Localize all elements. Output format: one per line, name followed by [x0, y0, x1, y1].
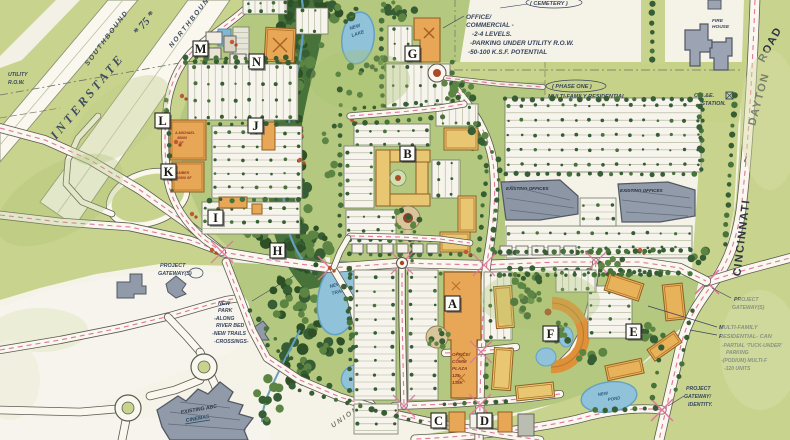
svg-text:I: I — [213, 211, 218, 225]
svg-text:C: C — [434, 414, 443, 428]
svg-text:B: B — [403, 147, 411, 161]
svg-text:L: L — [158, 114, 166, 128]
svg-text:K: K — [164, 165, 174, 179]
svg-text:G: G — [408, 47, 418, 61]
svg-text:J: J — [252, 119, 258, 133]
svg-text:D: D — [480, 414, 489, 428]
svg-text:N: N — [252, 55, 261, 69]
svg-text:E: E — [629, 325, 637, 339]
svg-text:A: A — [448, 297, 457, 311]
svg-text:H: H — [273, 244, 283, 258]
svg-text:M: M — [195, 42, 207, 56]
svg-text:F: F — [547, 327, 555, 341]
